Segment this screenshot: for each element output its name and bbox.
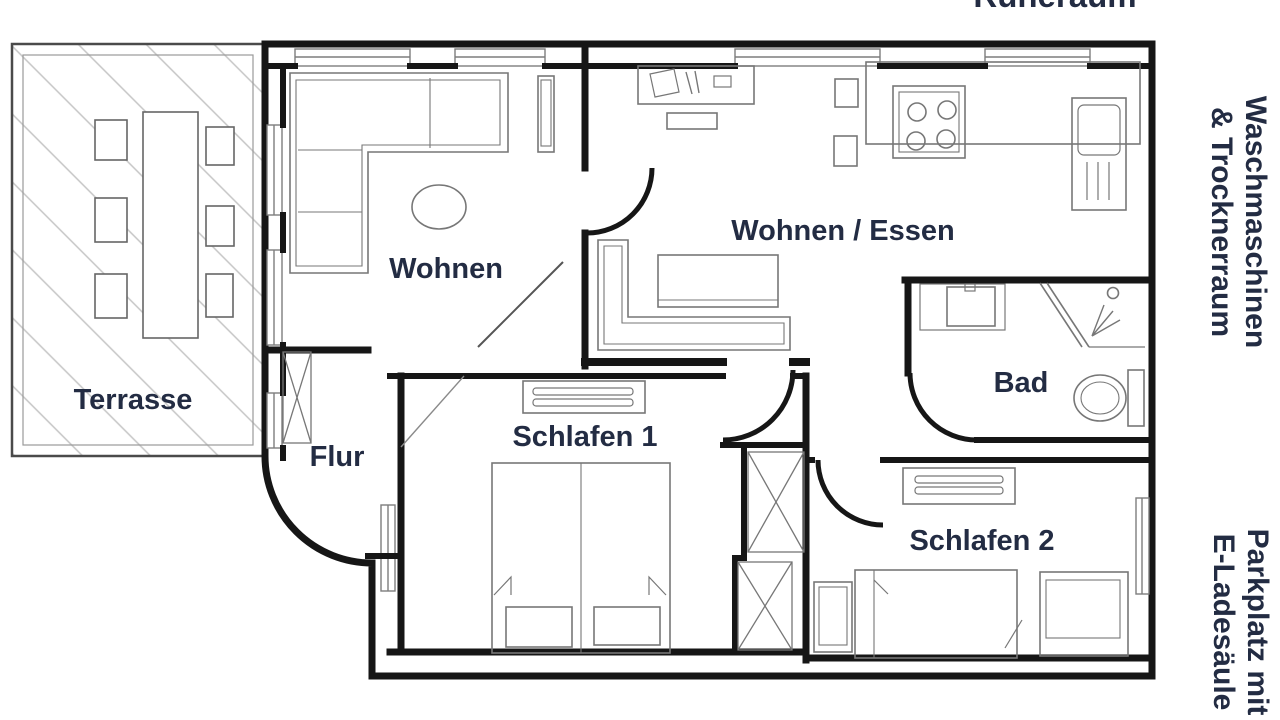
terrace-table — [143, 112, 198, 338]
label-ruheraum-cutoff: Ruheraum — [955, 0, 1155, 16]
label-living: Wohnen — [389, 253, 503, 285]
label-bath: Bad — [994, 367, 1049, 399]
radiator-bedroom2-right — [1136, 498, 1149, 594]
label-bedroom2: Schlafen 2 — [909, 525, 1054, 557]
label-parking: Parkplatz mit E-Ladesäule — [1206, 497, 1274, 720]
window-left-2 — [267, 250, 282, 345]
window-bedroom1-left — [381, 505, 395, 591]
window-top-living2 — [455, 49, 545, 66]
window-left-1 — [267, 125, 282, 215]
label-hall: Flur — [310, 441, 365, 473]
window-top-kitchen — [985, 49, 1090, 66]
window-top-living — [295, 49, 410, 66]
terrace-door — [267, 393, 282, 448]
label-terrace: Terrasse — [74, 384, 193, 416]
label-bedroom1: Schlafen 1 — [512, 421, 657, 453]
label-parking-line1: Parkplatz mit — [1240, 497, 1274, 720]
label-laundry-line2: & Trocknerraum — [1204, 82, 1238, 362]
label-laundry-line1: Waschmaschinen — [1238, 82, 1272, 362]
floorplan-drawing: Wohnen Wohnen / Essen Terrasse Flur Schl… — [0, 0, 1280, 720]
floorplan-page: Wohnen Wohnen / Essen Terrasse Flur Schl… — [0, 0, 1280, 720]
label-parking-line2: E-Ladesäule — [1206, 497, 1240, 720]
window-top-dining — [735, 49, 880, 66]
label-laundry-room: Waschmaschinen & Trocknerraum — [1204, 82, 1272, 362]
label-living-dining: Wohnen / Essen — [731, 215, 954, 247]
